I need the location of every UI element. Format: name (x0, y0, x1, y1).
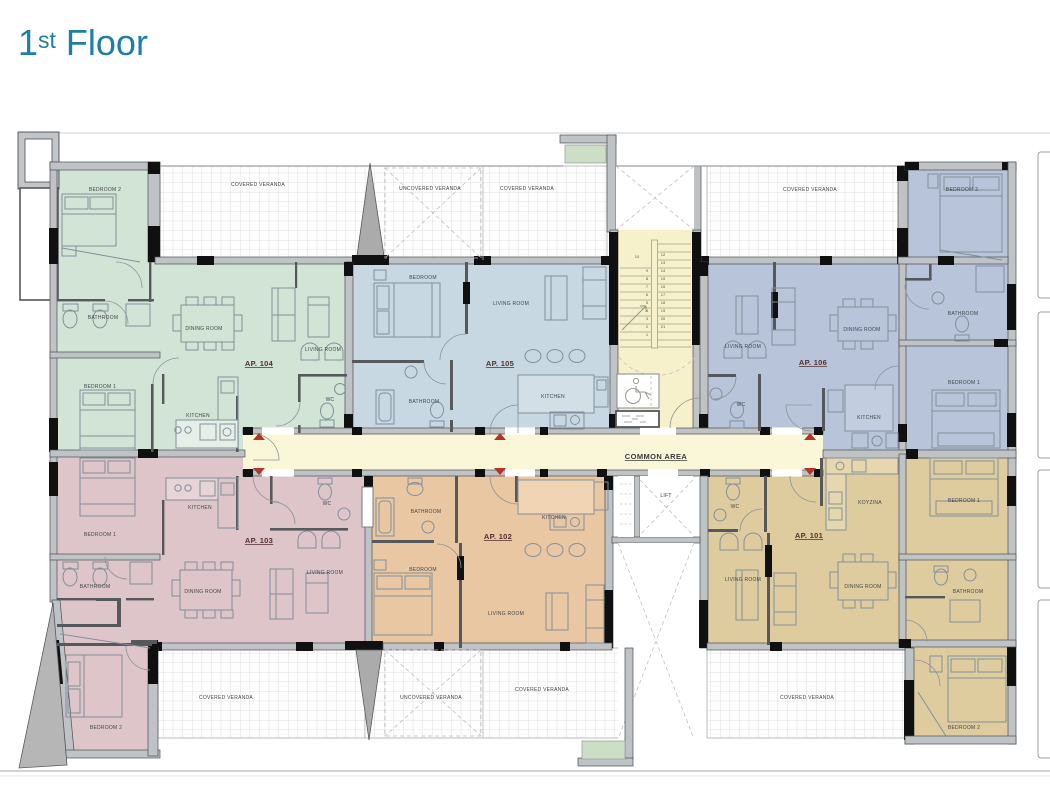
svg-text:KOYZINA: KOYZINA (858, 500, 882, 506)
svg-text:12: 12 (661, 252, 666, 257)
svg-text:DINING ROOM: DINING ROOM (185, 326, 222, 332)
svg-text:UNCOVERED VERANDA: UNCOVERED VERANDA (399, 186, 461, 192)
svg-text:DINING ROOM: DINING ROOM (844, 584, 881, 590)
svg-text:WC: WC (326, 397, 335, 403)
svg-text:KITCHEN: KITCHEN (542, 515, 566, 521)
svg-text:KITCHEN: KITCHEN (541, 394, 565, 400)
svg-text:LIFT: LIFT (660, 493, 671, 499)
svg-text:13: 13 (661, 260, 666, 265)
svg-text:LIVING ROOM: LIVING ROOM (725, 577, 761, 583)
svg-text:BEDROOM 1: BEDROOM 1 (84, 532, 116, 538)
svg-text:17: 17 (661, 292, 666, 297)
svg-text:AP. 101: AP. 101 (795, 531, 823, 540)
svg-text:BEDROOM 1: BEDROOM 1 (84, 384, 116, 390)
svg-text:LIVING ROOM: LIVING ROOM (488, 611, 524, 617)
svg-text:AP. 105: AP. 105 (486, 359, 514, 368)
svg-text:LIVING ROOM: LIVING ROOM (305, 347, 341, 353)
svg-text:AP. 102: AP. 102 (484, 532, 512, 541)
svg-text:10: 10 (635, 254, 640, 259)
svg-text:BEDROOM 2: BEDROOM 2 (948, 725, 980, 731)
svg-text:AP. 104: AP. 104 (245, 359, 274, 368)
svg-text:BATHROOM: BATHROOM (88, 315, 119, 321)
svg-text:COVERED VERANDA: COVERED VERANDA (780, 695, 834, 701)
svg-text:15: 15 (661, 276, 666, 281)
svg-text:COVERED VERANDA: COVERED VERANDA (231, 182, 285, 188)
svg-text:BATHROOM: BATHROOM (411, 509, 442, 515)
svg-text:BATHROOM: BATHROOM (80, 584, 111, 590)
svg-text:14: 14 (661, 268, 666, 273)
svg-text:BEDROOM 2: BEDROOM 2 (946, 187, 978, 193)
svg-text:UNCOVERED VERANDA: UNCOVERED VERANDA (400, 695, 462, 701)
svg-text:19: 19 (661, 308, 666, 313)
svg-text:COVERED VERANDA: COVERED VERANDA (199, 695, 253, 701)
svg-text:WC: WC (737, 402, 746, 408)
svg-text:1st Floor: 1st Floor (18, 22, 148, 63)
svg-text:KITCHEN: KITCHEN (188, 505, 212, 511)
svg-text:16: 16 (661, 284, 666, 289)
svg-text:COVERED VERANDA: COVERED VERANDA (783, 187, 837, 193)
svg-text:WC: WC (323, 501, 332, 507)
svg-text:DINING ROOM: DINING ROOM (843, 327, 880, 333)
svg-text:LIVING ROOM: LIVING ROOM (307, 570, 343, 576)
svg-text:18: 18 (661, 300, 666, 305)
svg-text:DINING ROOM: DINING ROOM (184, 589, 221, 595)
svg-text:BEDROOM 1: BEDROOM 1 (948, 498, 980, 504)
svg-text:21: 21 (661, 324, 666, 329)
svg-text:LIVING ROOM: LIVING ROOM (493, 301, 529, 307)
svg-text:20: 20 (661, 316, 666, 321)
svg-text:BEDROOM: BEDROOM (409, 567, 437, 573)
svg-text:AP. 103: AP. 103 (245, 536, 273, 545)
svg-text:WC: WC (731, 504, 740, 510)
svg-text:BEDROOM 2: BEDROOM 2 (89, 187, 121, 193)
svg-text:BEDROOM: BEDROOM (409, 275, 437, 281)
svg-text:LIVING ROOM: LIVING ROOM (725, 344, 761, 350)
svg-text:KITCHEN: KITCHEN (186, 413, 210, 419)
svg-text:COMMON AREA: COMMON AREA (625, 452, 688, 461)
svg-text:COVERED VERANDA: COVERED VERANDA (500, 186, 554, 192)
svg-text:KITCHEN: KITCHEN (857, 415, 881, 421)
svg-text:BATHROOM: BATHROOM (409, 399, 440, 405)
svg-text:BATHROOM: BATHROOM (953, 589, 984, 595)
svg-text:BATHROOM: BATHROOM (948, 311, 979, 317)
svg-text:BEDROOM 2: BEDROOM 2 (90, 725, 122, 731)
svg-text:COVERED VERANDA: COVERED VERANDA (515, 687, 569, 693)
svg-text:AP. 106: AP. 106 (799, 358, 827, 367)
svg-text:BEDROOM 1: BEDROOM 1 (948, 380, 980, 386)
